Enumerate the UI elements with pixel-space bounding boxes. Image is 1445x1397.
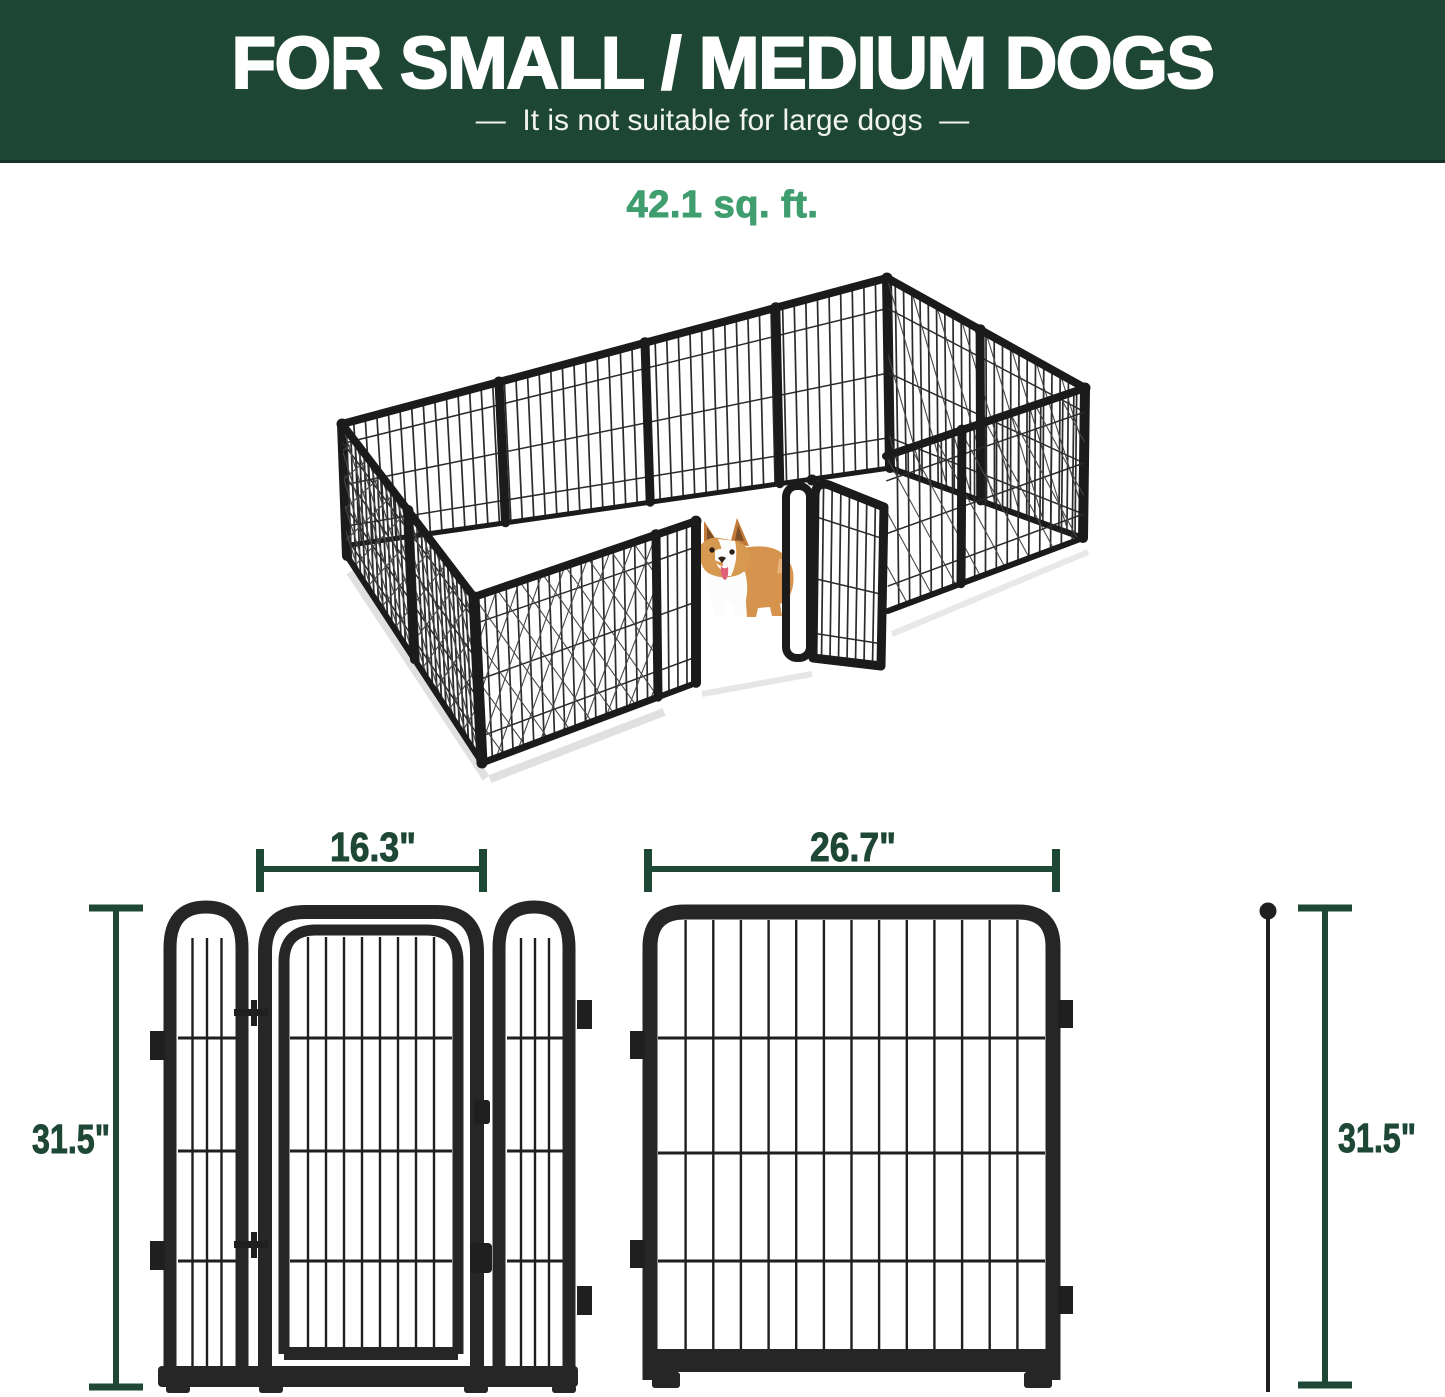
svg-text:16.3": 16.3" bbox=[330, 824, 416, 870]
svg-text:31.5": 31.5" bbox=[1338, 1115, 1416, 1161]
svg-text:26.7": 26.7" bbox=[810, 824, 896, 870]
svg-text:31.5": 31.5" bbox=[32, 1116, 110, 1162]
